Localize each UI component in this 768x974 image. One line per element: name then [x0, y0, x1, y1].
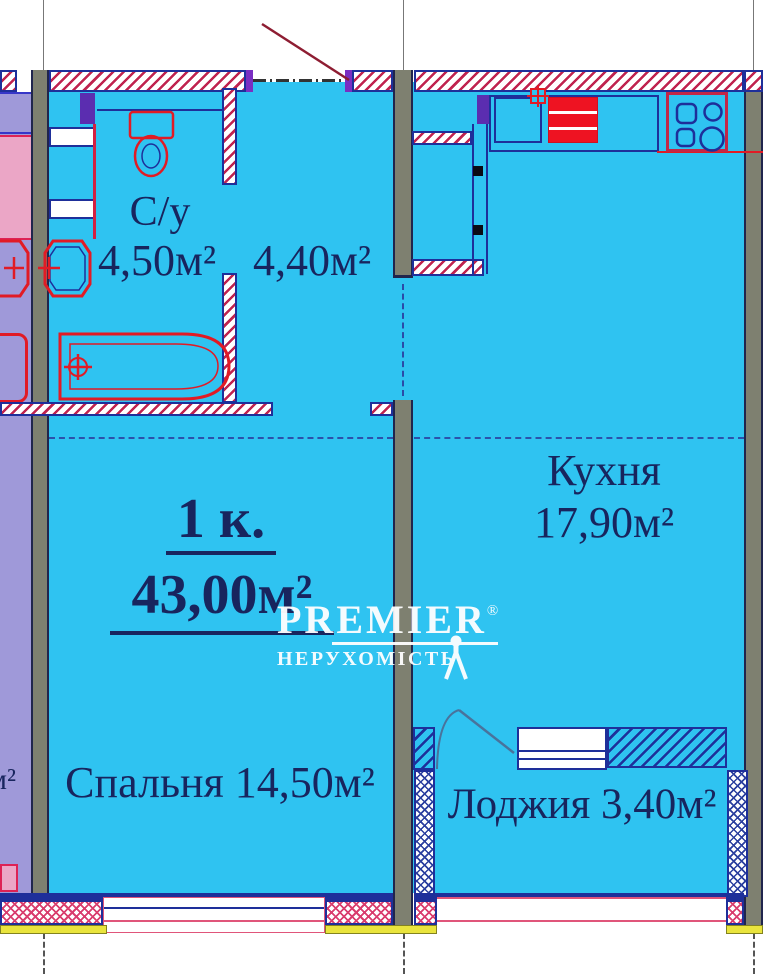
bathroom-wall-lower — [222, 273, 237, 403]
refrigerator-fixture — [548, 97, 598, 143]
loggia-glazing-line — [437, 920, 726, 922]
loggia-label: Лоджия 3,40м² — [430, 782, 734, 827]
kitchen-door-centerline — [402, 284, 404, 396]
bathroom-wall-upper — [222, 88, 237, 185]
axis-line-left-bottom — [43, 933, 45, 974]
top-wall-right — [744, 70, 763, 92]
entrance-jamb-right — [345, 70, 352, 92]
bedroom-window-line2 — [104, 920, 324, 922]
axis-line-mid-bottom — [403, 933, 405, 974]
watermark-registered-mark: ® — [487, 603, 498, 619]
top-wall-neighbor — [0, 70, 17, 92]
bottom-wall-seg2 — [325, 900, 393, 925]
top-wall-kitchen — [414, 70, 744, 92]
bedroom-window — [103, 897, 325, 933]
axis-line-mid-top — [403, 0, 404, 70]
bathroom-area-label: 4,50м² — [77, 238, 237, 284]
bathroom-bottom-wall — [0, 402, 273, 416]
bottom-wall-seg3 — [414, 900, 437, 925]
bedroom-label: Спальня 14,50м² — [30, 760, 410, 806]
top-wall-mid — [352, 70, 393, 92]
agency-watermark: PREMIER® НЕРУХОМІСТЬ — [277, 596, 505, 688]
bathroom-name-label: С/у — [110, 190, 210, 234]
neighbor-room-outline — [0, 92, 31, 134]
neighbor-area-fragment: м² — [0, 764, 16, 796]
watermark-tagline: НЕРУХОМІСТЬ — [277, 648, 456, 671]
kitchen-sink-fixture — [494, 97, 542, 143]
bathroom-duct-line — [93, 124, 96, 239]
hall-bedroom-wall-stub — [370, 402, 393, 416]
partition-wall-upper — [393, 70, 413, 278]
bedroom-window-line1 — [104, 907, 324, 909]
duct-door-hinge-top — [473, 166, 483, 176]
loggia-glazing — [437, 897, 726, 933]
kitchen-area-label: 17,90м² — [524, 500, 684, 546]
duct-door-hinge-bottom — [473, 225, 483, 235]
neighbor-apartment-strip: м² — [0, 92, 31, 893]
entrance-opening-centerline — [253, 79, 345, 82]
kitchen-name-label: Кухня — [534, 448, 674, 494]
axis-line-right-top — [753, 0, 754, 70]
top-wall-gap — [17, 70, 31, 92]
window-sill-yellow-mid — [325, 925, 437, 934]
top-wall-left — [49, 70, 246, 92]
neighbor-pink-block — [0, 864, 18, 892]
neighbor-bathtub-partial — [0, 333, 28, 403]
loggia-window-line1 — [519, 750, 605, 752]
axis-line-left-top — [43, 0, 44, 70]
floor-plan: м² — [0, 0, 768, 974]
bottom-wall-seg1 — [0, 900, 103, 925]
stove-fixture — [666, 92, 728, 152]
loggia-window-line2 — [519, 758, 605, 760]
bedroom-zone-line — [49, 437, 393, 439]
kitchen-duct-vent — [477, 95, 489, 124]
entrance-door-leaf — [262, 24, 349, 80]
bathroom-niche-line — [97, 109, 227, 111]
bathroom-vent-shaft — [80, 93, 95, 124]
entrance-jamb-left — [246, 70, 253, 92]
kitchen-zone-line — [414, 437, 744, 439]
bathroom-shelf-upper — [49, 127, 95, 147]
kitchen-duct-doors — [472, 124, 488, 274]
loggia-window — [517, 727, 607, 770]
watermark-underline — [332, 642, 498, 645]
loggia-wall-left-block — [413, 727, 435, 770]
window-sill-yellow-right — [726, 925, 763, 934]
window-sill-yellow-left — [0, 925, 107, 934]
axis-line-right-bottom — [753, 933, 755, 974]
bathroom-shelf-lower — [49, 199, 95, 219]
loggia-wall-hatch-band — [607, 727, 727, 768]
bottom-wall-seg4 — [726, 900, 744, 925]
surveyor-person-icon — [441, 634, 471, 682]
neighbor-pink-room — [0, 135, 31, 240]
kitchen-duct-stub-top — [412, 131, 472, 145]
hallway-area-label: 4,40м² — [232, 238, 392, 284]
apartment-rooms-label: 1 к. — [166, 490, 276, 555]
